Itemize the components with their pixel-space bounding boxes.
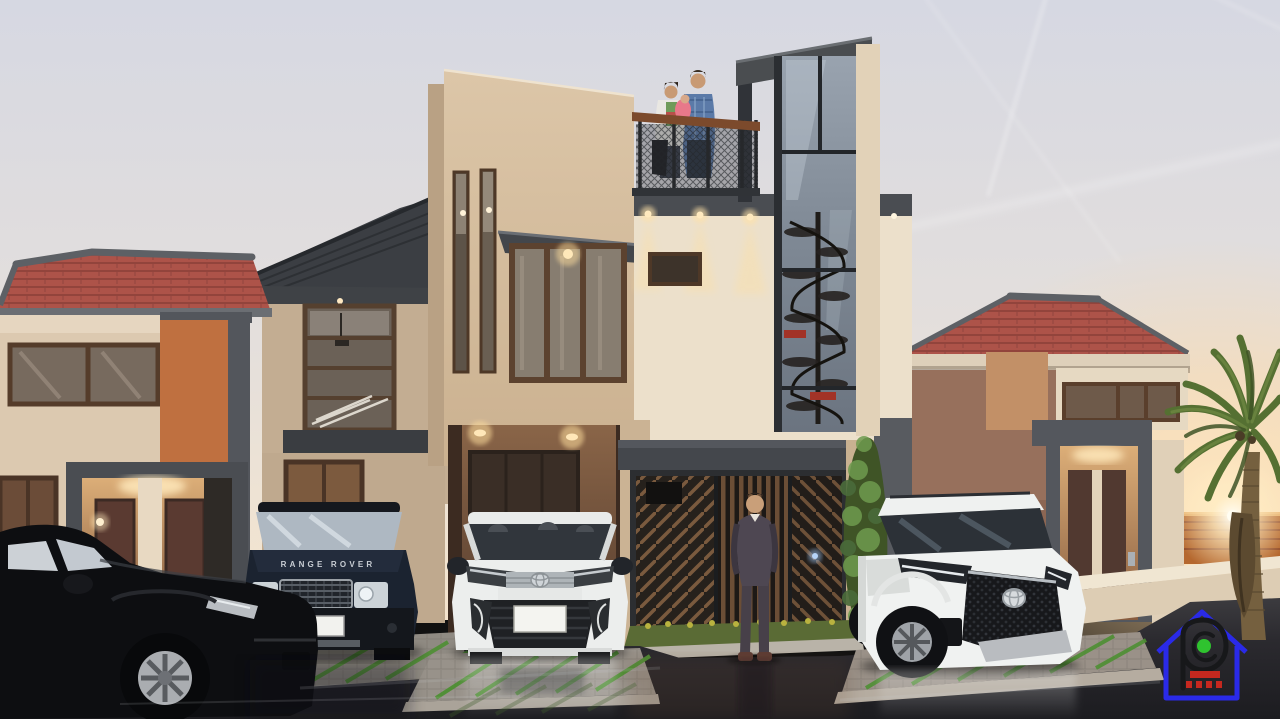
balcony-railing [632,112,760,196]
mirror [447,557,469,575]
toyota-emblem [1003,589,1025,607]
windshield [880,508,1052,556]
architectural-render: RANGE ROVER [0,0,1280,719]
downlight [486,207,492,213]
logo-dot [1197,639,1211,653]
small-window [650,254,700,284]
accent-panel [160,320,232,470]
tan-panel [986,352,1048,430]
license-plate [514,606,566,632]
car-white-minivan [447,512,633,664]
toyota-emblem [531,573,549,587]
downlight [337,298,343,304]
two-story-window [305,306,394,430]
range-rover-hood-text: RANGE ROVER [281,560,376,569]
red-rail [784,330,806,338]
clerestory-window [10,345,158,404]
large-window [512,242,624,380]
downlight [460,210,466,216]
garage-window [470,452,578,520]
floor-slab [283,430,445,453]
red-rail [810,392,836,400]
downlight [1072,447,1124,463]
mirror [63,574,93,594]
mirror [611,557,633,575]
clerestory-window [1064,384,1178,420]
